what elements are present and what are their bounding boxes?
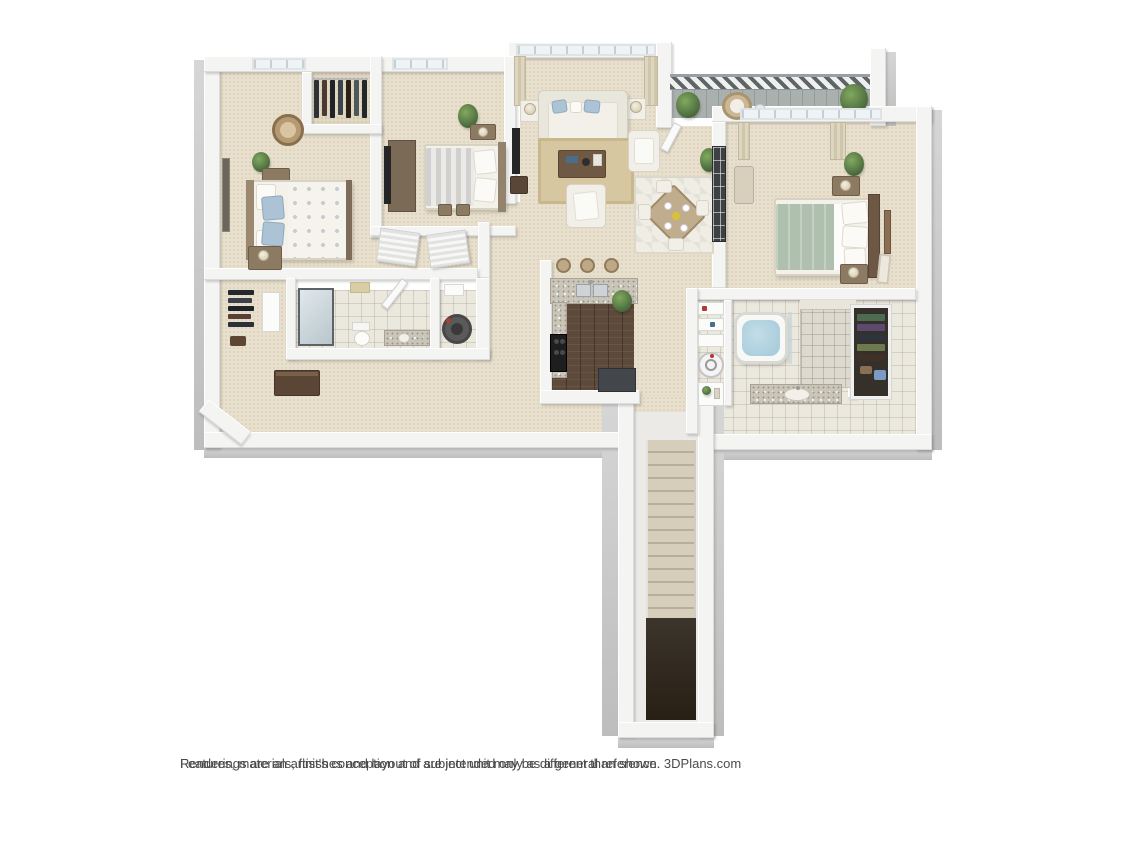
toilet-bowl — [354, 331, 370, 346]
stair-lower-landing — [646, 618, 696, 720]
bedroom-3-storage-box — [438, 204, 452, 216]
master-bedroom-curtain — [738, 122, 750, 160]
dining-plate — [664, 202, 672, 210]
wall-outer-right — [916, 106, 932, 450]
bar-stool — [556, 258, 571, 273]
armchair-cushion — [573, 191, 600, 221]
hanging-clothes — [338, 80, 343, 115]
bedroom-2-mirror — [222, 158, 230, 232]
bedroom-2-window — [252, 58, 306, 70]
bedroom-3-blanket — [426, 148, 474, 206]
linen-item — [710, 322, 715, 327]
glass-shower — [298, 288, 334, 346]
hanging-clothes — [354, 80, 359, 116]
living-room-window — [516, 44, 656, 56]
living-room-tv — [512, 128, 520, 174]
dining-centerpiece — [672, 212, 680, 220]
master-lamp — [848, 267, 859, 278]
linen-shelf-vase — [714, 388, 720, 399]
hall-closet-clothes — [228, 314, 251, 319]
end-table-lamp — [630, 101, 642, 113]
wall-bottom-left — [204, 432, 620, 448]
staircase — [646, 440, 696, 618]
wall-face-stair-right — [714, 400, 724, 736]
master-lamp — [840, 180, 851, 191]
master-bedroom-bench — [734, 166, 754, 204]
master-pillow — [841, 201, 869, 226]
bedroom-3-pillow — [473, 177, 497, 203]
bedroom-2-duvet — [288, 182, 346, 258]
hallway-credenza-top — [276, 372, 318, 376]
wall-face-bottom-left — [204, 448, 620, 458]
range-burner — [560, 339, 565, 344]
kitchen-sink — [576, 284, 591, 297]
coffee-table-decor — [593, 154, 602, 166]
range-burner — [554, 350, 559, 355]
sofa-pillow — [583, 99, 600, 114]
coffee-table-vase — [582, 158, 590, 166]
floorplan-3d — [0, 0, 1125, 844]
bedroom-3-tv — [384, 146, 391, 204]
wardrobe-clothes — [857, 354, 885, 361]
range-burner — [560, 350, 565, 355]
range-burner — [554, 339, 559, 344]
dining-plate — [682, 204, 690, 212]
wall-bathrow-bottom — [286, 348, 490, 360]
shower-ledge — [800, 300, 856, 310]
hanging-clothes — [330, 80, 335, 118]
hanging-clothes — [322, 80, 327, 116]
tv-console — [510, 176, 528, 194]
hall-closet-clothes — [228, 298, 252, 303]
wall-stair-right — [698, 396, 714, 736]
bedroom-3-window — [392, 58, 448, 70]
bedroom-2-accent-pillow — [261, 221, 285, 247]
wall-hall-closet-right — [286, 278, 296, 358]
master-wall-art — [884, 210, 891, 254]
master-bed-duvet — [776, 204, 836, 270]
wall-face-stair-bottom — [618, 738, 714, 748]
bedroom-3-pillow — [473, 149, 497, 175]
dining-chair — [696, 200, 709, 216]
hanging-clothes — [362, 80, 367, 118]
wall-master-bath-top — [690, 288, 916, 300]
hall-bath-sink — [398, 333, 410, 343]
dining-chair — [668, 238, 684, 251]
wall-kitchen-bottom — [540, 390, 640, 404]
linen-shelf-plant — [702, 386, 711, 395]
wall-face-bottom-right — [702, 450, 932, 460]
wall-master-bath-left — [686, 288, 698, 434]
hall-closet-shelf — [262, 292, 280, 332]
sofa-pillow — [570, 101, 582, 113]
sofa-pillow — [551, 99, 568, 114]
wall-utility-right — [476, 278, 490, 358]
water-heater-cap — [451, 323, 463, 335]
disclaimer-line-2: Features, materials, finishes and layout… — [180, 753, 741, 774]
water-heater-valve — [446, 318, 451, 323]
balcony-railing — [670, 74, 870, 90]
living-room-curtain — [514, 56, 526, 106]
tub-water — [742, 320, 780, 356]
hall-closet-clothes — [228, 290, 254, 295]
kitchen-plant — [612, 290, 632, 312]
bedroom-2-footboard — [346, 180, 352, 260]
wall-face-stair-left — [602, 400, 618, 736]
louvered-closet-door — [426, 229, 470, 268]
bathroom-ceiling-light — [350, 282, 370, 293]
master-bedroom-plant — [844, 152, 864, 176]
wall-stair-left — [618, 396, 634, 736]
kitchen-sink — [593, 284, 608, 297]
wall-closet-bottom — [302, 124, 382, 134]
wall-linen-divider — [724, 300, 732, 406]
wall-face-right — [932, 110, 942, 450]
dining-plate — [664, 222, 672, 230]
end-table-lamp — [524, 103, 536, 115]
bedroom-3-storage-box — [456, 204, 470, 216]
tiled-shower — [800, 300, 856, 388]
wardrobe-clothes — [857, 324, 885, 331]
toilet-tank — [352, 322, 370, 331]
balcony-plant — [676, 92, 700, 118]
living-room-curtain — [644, 56, 658, 106]
wall-stair-bottom — [618, 722, 714, 738]
dining-chair — [638, 204, 651, 220]
wardrobe-shoe — [860, 366, 872, 374]
coffee-table-book — [566, 156, 578, 163]
wall-corridor-left — [478, 222, 490, 278]
linen-item — [702, 306, 707, 311]
master-vanity-faucet — [796, 386, 800, 390]
linen-shelf-lower — [698, 382, 724, 406]
bedroom-3-lamp — [478, 127, 488, 137]
washer-knob — [710, 354, 714, 358]
master-pillow — [841, 225, 868, 249]
wall-bottom-right — [702, 434, 932, 450]
kitchen-faucet — [588, 280, 593, 284]
tub-glass-panel — [788, 312, 792, 364]
dining-plate — [680, 224, 688, 232]
master-bedroom-window — [740, 108, 882, 120]
wardrobe-towel — [874, 370, 886, 380]
wall-utility-left — [430, 278, 440, 358]
master-bedroom-glass-panel — [712, 146, 726, 242]
hanging-clothes — [346, 80, 351, 118]
wall-face-left — [194, 60, 204, 450]
linen-shelf — [698, 334, 724, 347]
wardrobe-interior — [854, 308, 888, 396]
armchair-cushion — [634, 138, 654, 164]
wardrobe-clothes — [857, 344, 885, 351]
hall-closet-bag — [230, 336, 246, 346]
utility-shelf — [444, 284, 464, 296]
master-bedroom-curtain — [830, 122, 846, 160]
kitchen-dark-counter — [598, 368, 636, 392]
bedroom-2-accent-pillow — [261, 195, 285, 221]
screenshot-canvas: Renderings are an artist's conception an… — [0, 0, 1125, 844]
bar-stool — [580, 258, 595, 273]
wall-outer-left — [204, 56, 220, 448]
hall-closet-clothes — [228, 306, 254, 311]
wardrobe-clothes — [857, 314, 885, 321]
bedroom-3-dresser — [388, 140, 416, 212]
dining-chair — [656, 180, 672, 193]
hall-closet-clothes — [228, 322, 254, 327]
bedroom-2-lamp — [258, 250, 269, 261]
wardrobe-clothes — [857, 334, 885, 341]
wall-bedroom2-bedroom3 — [370, 56, 382, 238]
washer-door — [705, 359, 717, 371]
bar-stool — [604, 258, 619, 273]
bedroom-2-chair-seat — [280, 122, 296, 138]
louvered-closet-door — [376, 227, 420, 266]
bedroom-3-headboard — [498, 142, 506, 212]
wall-closet-left — [302, 72, 312, 130]
hanging-clothes — [314, 80, 319, 118]
